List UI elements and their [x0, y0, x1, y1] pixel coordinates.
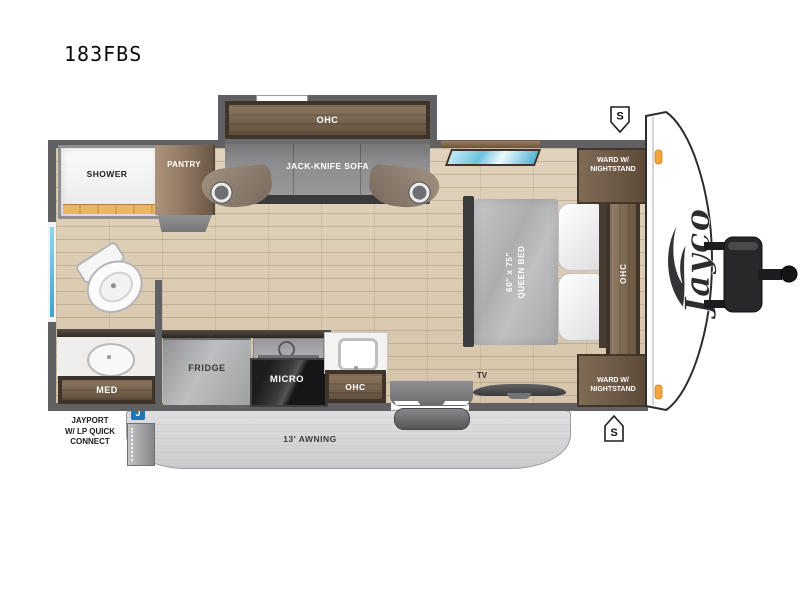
marker-light-icon	[655, 150, 662, 164]
bedroom-ohc	[606, 183, 640, 363]
wardrobe-nightstand-top	[577, 148, 649, 204]
bed-window-trim	[441, 141, 540, 148]
slideout-wall-right	[430, 95, 437, 148]
med-cabinet	[58, 376, 156, 404]
wardrobe-nightstand-bottom	[577, 354, 649, 407]
bed-window-glass	[445, 149, 541, 166]
shower	[58, 145, 161, 219]
cupholder-icon	[409, 182, 431, 204]
awning	[126, 410, 571, 469]
entry-step	[394, 408, 470, 430]
pillow	[558, 203, 602, 271]
bathroom-sink-icon	[87, 343, 135, 377]
bed-mattress	[474, 199, 558, 345]
pillow	[558, 273, 602, 341]
jayport-label: JAYPORT W/ LP QUICK CONNECT	[52, 414, 128, 450]
speaker-icon: S	[603, 413, 625, 443]
shower-ledge	[63, 204, 156, 214]
kitchen-counter-edge	[162, 330, 331, 338]
microwave	[250, 358, 328, 407]
left-window-glass	[50, 227, 54, 317]
jayport-device	[127, 423, 155, 466]
pantry-base	[156, 215, 212, 232]
cupholder-icon	[211, 182, 233, 204]
bed-footboard	[463, 196, 474, 347]
speaker-icon: S	[609, 105, 631, 135]
floorplan-canvas: 183FBS 13' AWNING JAYPORT W/ LP QUICK CO…	[0, 0, 800, 600]
stove-icon	[253, 338, 324, 360]
entry-landing	[390, 381, 473, 406]
jayport-device-vents	[131, 428, 133, 461]
page-title: 183FBS	[64, 42, 142, 66]
tv-icon	[473, 384, 566, 396]
hitch-bar	[758, 269, 782, 280]
bathroom-vanity	[57, 329, 157, 376]
kitchen-ohc	[325, 370, 386, 403]
svg-text:S: S	[616, 111, 623, 123]
kitchen-sink-icon	[338, 338, 378, 371]
marker-light-icon	[655, 385, 662, 399]
hitch-ball-icon	[781, 266, 797, 282]
slideout-wall-left	[218, 95, 225, 148]
fridge	[163, 338, 251, 405]
bath-partition-wall	[155, 280, 162, 403]
svg-text:S: S	[610, 427, 617, 439]
front-cap: Jayco	[640, 104, 800, 419]
slideout-ohc	[225, 101, 430, 139]
kitchen-sink-counter	[324, 332, 388, 374]
